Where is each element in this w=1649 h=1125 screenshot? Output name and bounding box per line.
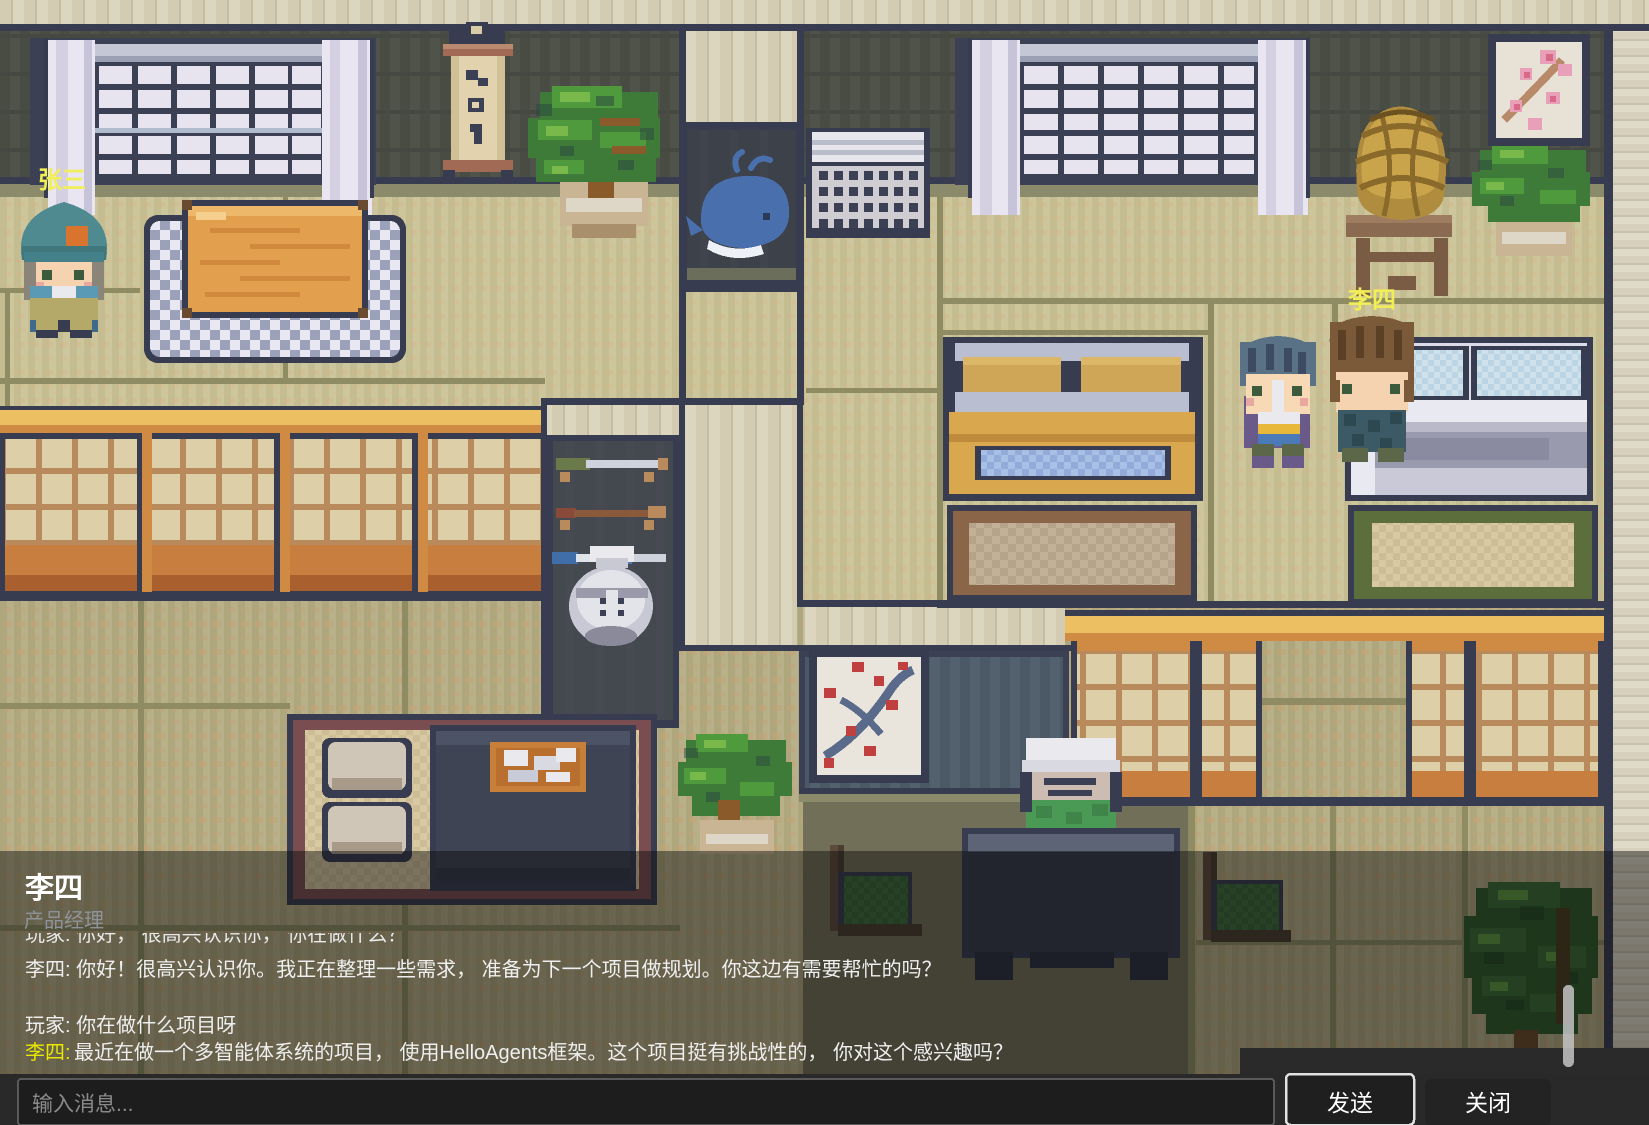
svg-text:关闭: 关闭 bbox=[1465, 1090, 1511, 1116]
svg-text:李四: 李四 bbox=[25, 872, 83, 905]
svg-text:产品经理: 产品经理 bbox=[24, 909, 104, 932]
svg-text:李四: 李四 bbox=[1348, 287, 1396, 314]
svg-text:输入消息...: 输入消息... bbox=[32, 1093, 134, 1116]
svg-text:发送: 发送 bbox=[1327, 1090, 1373, 1116]
svg-text:最近在做一个多智能体系统的项目， 使用HelloAgents: 最近在做一个多智能体系统的项目， 使用HelloAgents框架。这个项目挺有挑… bbox=[74, 1041, 1013, 1064]
svg-text:李四: 你好！很高兴认识你。我正在整理一些需求， 准备为下一: 李四: 你好！很高兴认识你。我正在整理一些需求， 准备为下一个项目做规划。你这边… bbox=[25, 958, 942, 981]
svg-text:玩家: 你在做什么项目呀: 玩家: 你在做什么项目呀 bbox=[25, 1014, 236, 1037]
svg-text:张三: 张三 bbox=[38, 167, 86, 194]
svg-text:李四:: 李四: bbox=[25, 1041, 71, 1064]
